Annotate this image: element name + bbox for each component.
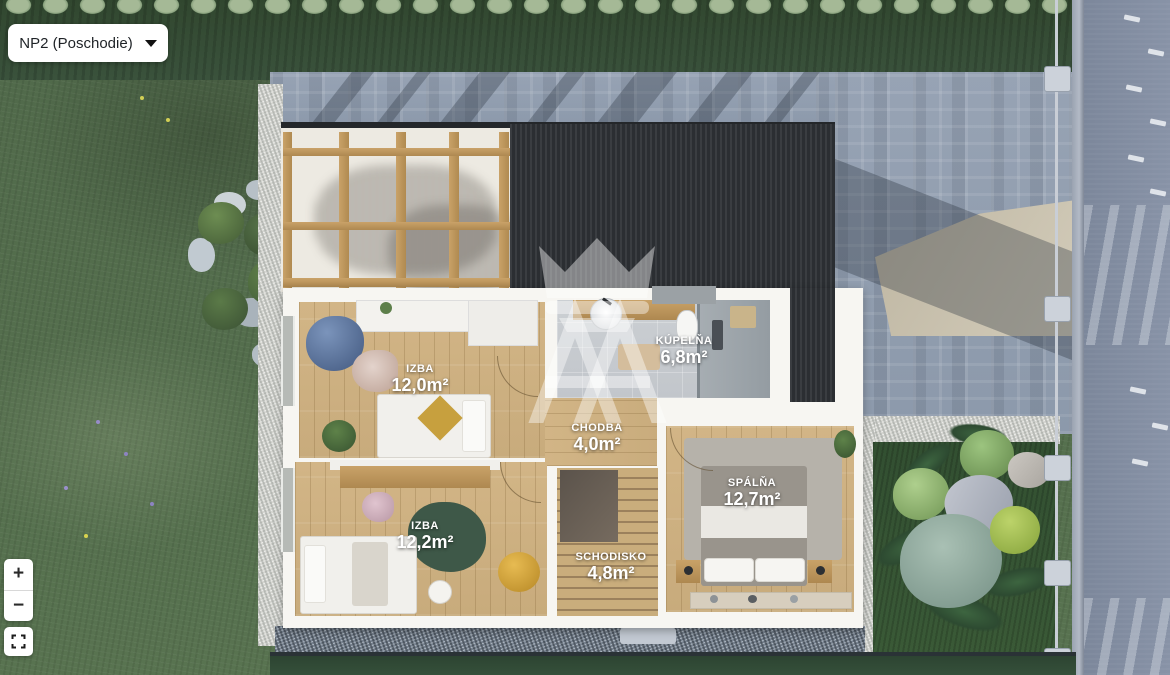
chair [362, 492, 394, 522]
pillow [462, 400, 486, 452]
stairwell [560, 470, 618, 542]
flowers [166, 118, 170, 122]
room-area: 12,2m² [396, 532, 453, 552]
room-name: SCHODISKO [575, 551, 646, 563]
pillow [304, 545, 326, 603]
lamp [816, 566, 825, 575]
room-area: 6,8m² [656, 347, 713, 367]
flowers [140, 96, 144, 100]
shower-shelf [730, 306, 756, 328]
room-label-izba-1: IZBA 12,0m² [391, 363, 448, 395]
metal-roof [790, 288, 835, 402]
pillow [704, 558, 754, 582]
decor [790, 595, 798, 603]
flowers [96, 420, 100, 424]
room-name: CHODBA [571, 422, 622, 434]
crown-monogram-watermark-icon [525, 238, 670, 423]
gravel-border [258, 84, 283, 646]
decor [748, 595, 757, 603]
pouf [498, 552, 540, 592]
desk [340, 466, 490, 488]
chevron-down-icon [145, 40, 157, 47]
flowers [150, 502, 154, 506]
fence-post [1044, 455, 1071, 481]
rock [188, 238, 215, 272]
lamp [684, 566, 693, 575]
room-label-chodba: CHODBA 4,0m² [571, 422, 622, 454]
curb [1072, 0, 1084, 675]
room-label-schodisko: SCHODISKO 4,8m² [575, 551, 646, 583]
blanket [352, 542, 388, 606]
footing-gravel [275, 626, 865, 654]
side-table [428, 580, 452, 604]
room-area: 4,8m² [575, 563, 646, 583]
hedge-bottom [270, 656, 1076, 675]
fence-post [1044, 296, 1071, 322]
fence-post [1044, 560, 1071, 586]
pillow [755, 558, 805, 582]
plant [380, 302, 392, 314]
window [281, 468, 295, 552]
room-name: IZBA [396, 520, 453, 532]
fence-post [1044, 66, 1071, 92]
pergola-beam [283, 222, 511, 230]
room-area: 12,7m² [723, 489, 780, 509]
fullscreen-button[interactable] [4, 627, 33, 656]
plant [834, 430, 856, 458]
blanket [701, 506, 807, 538]
lower-floor-window [620, 628, 676, 644]
room-area: 12,0m² [391, 375, 448, 395]
decor [710, 595, 718, 603]
room-label-spalna: SPÁLŇA 12,7m² [723, 477, 780, 509]
pergola-beam [283, 148, 511, 156]
towel [712, 320, 723, 350]
room-name: KÚPEĽŇA [656, 335, 713, 347]
room-name: SPÁLŇA [723, 477, 780, 489]
fullscreen-icon [11, 634, 26, 649]
zoom-out-button[interactable]: − [4, 591, 33, 622]
room-name: IZBA [391, 363, 448, 375]
plant [322, 420, 356, 452]
zoom-in-button[interactable]: + [4, 559, 33, 590]
fence-light-stripes [1084, 598, 1170, 675]
room-label-kupelna: KÚPEĽŇA 6,8m² [656, 335, 713, 367]
flowers [64, 486, 68, 490]
hedge-top-bushes [0, 0, 1076, 20]
room-label-izba-2: IZBA 12,2m² [396, 520, 453, 552]
room-area: 4,0m² [571, 434, 622, 454]
zoom-control: + − [4, 559, 33, 621]
flowers [84, 534, 88, 538]
fence-light-stripes [1084, 205, 1170, 345]
window [281, 316, 295, 406]
floor-selector-value: NP2 (Poschodie) [19, 35, 132, 52]
flowers [124, 452, 128, 456]
pergola-beam [283, 278, 511, 287]
floor-selector-dropdown[interactable]: NP2 (Poschodie) [8, 24, 168, 62]
floorplan-canvas[interactable]: IZBA 12,0m² KÚPEĽŇA 6,8m² CHODBA 4,0m² I… [0, 0, 1170, 675]
